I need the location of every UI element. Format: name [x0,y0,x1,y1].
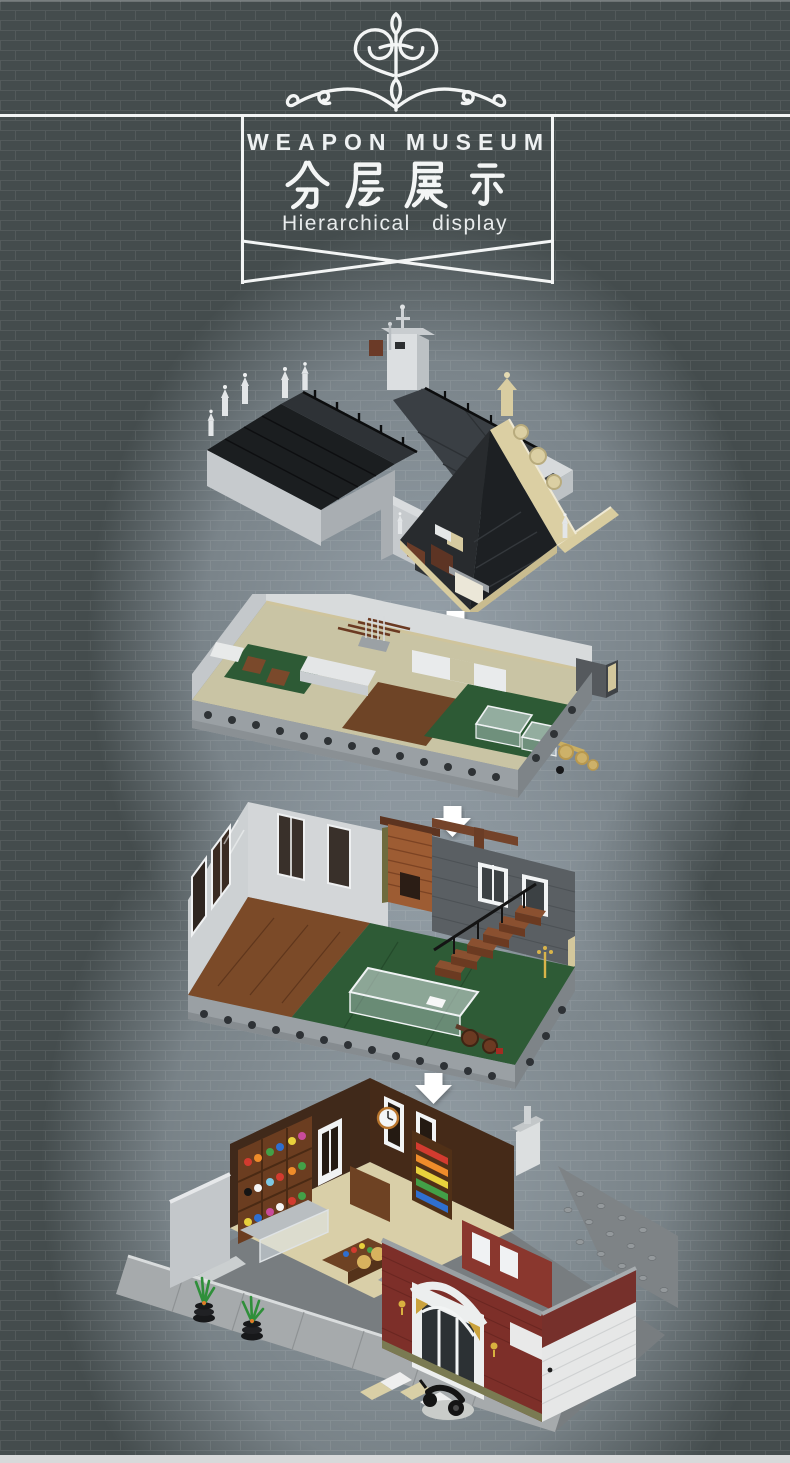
filigree-flourish-icon [282,10,510,114]
glyph-shi [472,166,502,204]
title-chinese-glyphs [284,158,510,210]
layer-top-floor [188,594,622,811]
product-poster: WEAPON MUSEUM 分层展示 [0,0,790,1463]
glyph-ceng [348,165,382,207]
wall-clock [378,1108,398,1128]
white-chimney [512,1106,544,1176]
layer-roof-assembly [185,304,619,617]
top-edge-highlight [0,0,790,2]
title-chinese: 分层展示 [284,158,510,210]
glyph-fen [288,163,328,207]
layer-ground-floor [112,1070,682,1455]
layer-middle-floor [178,800,624,1097]
subtitle-english: Hierarchical display [0,212,790,236]
dormer-tower [381,305,435,397]
bottom-page-strip [0,1455,790,1463]
frame-horizontal-line [0,114,790,117]
glyph-zhan [407,164,446,206]
title-english: WEAPON MUSEUM [0,129,790,156]
frame-cross-lines [241,238,554,285]
